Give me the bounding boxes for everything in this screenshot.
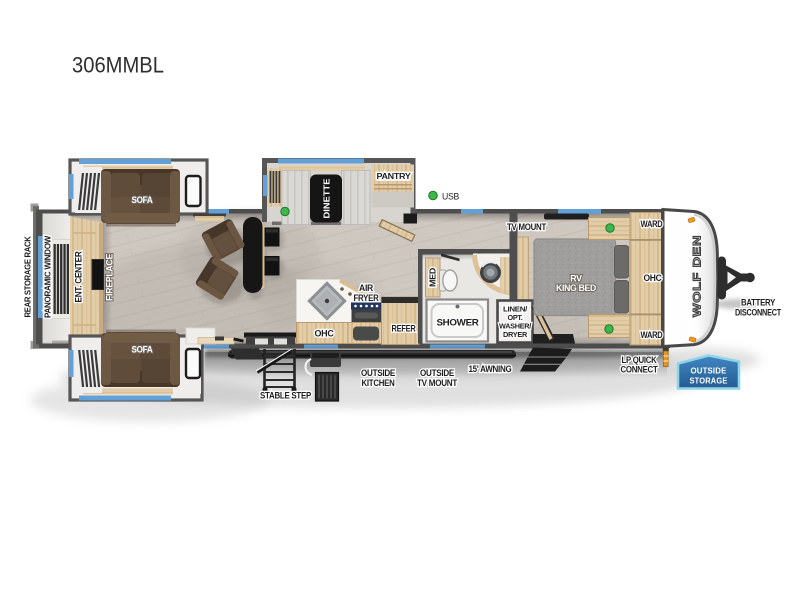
svg-text:KITCHEN: KITCHEN bbox=[362, 378, 395, 388]
svg-text:REAR STORAGE RACK: REAR STORAGE RACK bbox=[24, 236, 33, 318]
svg-text:FRYER: FRYER bbox=[354, 293, 380, 303]
svg-text:BATTERY: BATTERY bbox=[741, 298, 775, 308]
svg-text:306MMBL: 306MMBL bbox=[72, 53, 164, 78]
svg-text:STABLE STEP: STABLE STEP bbox=[260, 391, 311, 401]
svg-text:FIREPLACE: FIREPLACE bbox=[105, 254, 115, 301]
svg-text:PANTRY: PANTRY bbox=[377, 172, 412, 181]
svg-text:WOLF DEN: WOLF DEN bbox=[692, 235, 704, 317]
svg-text:TV MOUNT: TV MOUNT bbox=[507, 222, 547, 232]
svg-text:OHC: OHC bbox=[644, 273, 663, 283]
svg-text:MED: MED bbox=[428, 268, 438, 287]
svg-text:DISCONNECT: DISCONNECT bbox=[735, 308, 782, 318]
svg-text:WARD: WARD bbox=[641, 330, 663, 340]
svg-text:OUTSIDE: OUTSIDE bbox=[420, 368, 454, 378]
svg-text:REFER: REFER bbox=[392, 324, 417, 334]
svg-text:PANORAMIC WINDOW: PANORAMIC WINDOW bbox=[44, 235, 53, 318]
svg-text:KING BED: KING BED bbox=[556, 283, 596, 293]
svg-text:OUTSIDE: OUTSIDE bbox=[691, 366, 727, 376]
svg-text:15' AWNING: 15' AWNING bbox=[469, 364, 512, 374]
svg-text:RV: RV bbox=[570, 274, 582, 284]
svg-text:USB: USB bbox=[442, 192, 459, 203]
svg-text:SHOWER: SHOWER bbox=[437, 318, 480, 328]
svg-text:WARD: WARD bbox=[641, 219, 663, 229]
svg-text:TV MOUNT: TV MOUNT bbox=[417, 378, 458, 388]
svg-text:SOFA: SOFA bbox=[132, 345, 154, 355]
svg-text:SOFA: SOFA bbox=[132, 195, 154, 205]
svg-text:DINETTE: DINETTE bbox=[322, 178, 332, 218]
svg-text:AIR: AIR bbox=[359, 283, 374, 293]
svg-text:OHC: OHC bbox=[315, 329, 335, 339]
svg-text:DRYER: DRYER bbox=[503, 330, 528, 339]
svg-text:CONNECT: CONNECT bbox=[621, 365, 659, 375]
svg-text:ENT. CENTER: ENT. CENTER bbox=[74, 251, 84, 303]
svg-text:OUTSIDE: OUTSIDE bbox=[361, 368, 395, 378]
svg-text:STORAGE: STORAGE bbox=[690, 376, 728, 386]
svg-text:LP QUICK: LP QUICK bbox=[622, 355, 658, 365]
